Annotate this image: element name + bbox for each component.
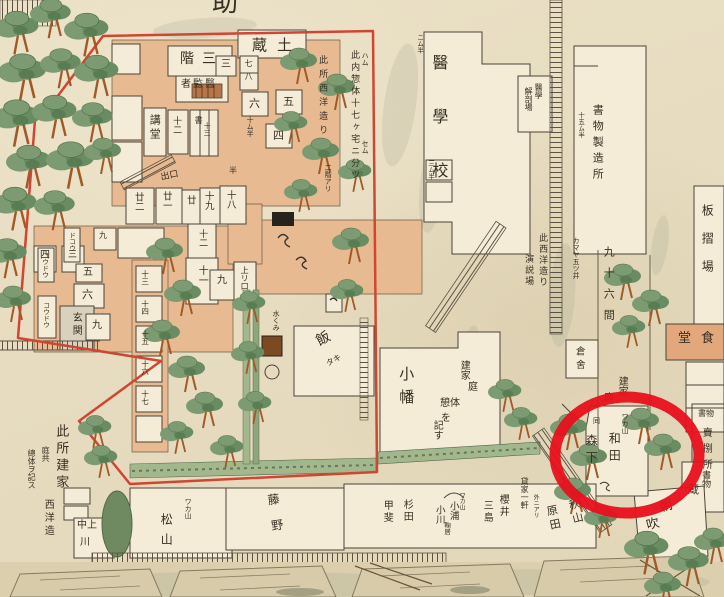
- tree-icon: [604, 264, 641, 300]
- tree-icon: [40, 49, 81, 89]
- tree-icon: [64, 13, 108, 56]
- tree-icon: [72, 103, 113, 143]
- tree-icon: [0, 286, 31, 322]
- tree-icon: [231, 341, 264, 373]
- tree-icon: [338, 159, 371, 191]
- tree-icon: [0, 187, 36, 230]
- map-drawing: [0, 0, 724, 597]
- dining-hall: [666, 324, 724, 360]
- moat-layer: [0, 556, 724, 597]
- tree-icon: [612, 315, 645, 347]
- tree-icon: [34, 191, 75, 231]
- tree-icon: [32, 95, 76, 138]
- historical-map: 助蔵土階三者監醫講堂十二書十三三七八六五四此内惣体十七ヶ宅ニ分ツ此所西洋造り二階…: [0, 0, 724, 597]
- tree-icon: [84, 445, 117, 477]
- tree-icon: [504, 407, 537, 439]
- tree-icon: [78, 415, 111, 447]
- tree-icon: [0, 54, 46, 101]
- tree-icon: [186, 392, 223, 428]
- tree-icon: [168, 356, 205, 392]
- buildings-layer: [34, 30, 724, 562]
- tree-icon: [6, 145, 50, 188]
